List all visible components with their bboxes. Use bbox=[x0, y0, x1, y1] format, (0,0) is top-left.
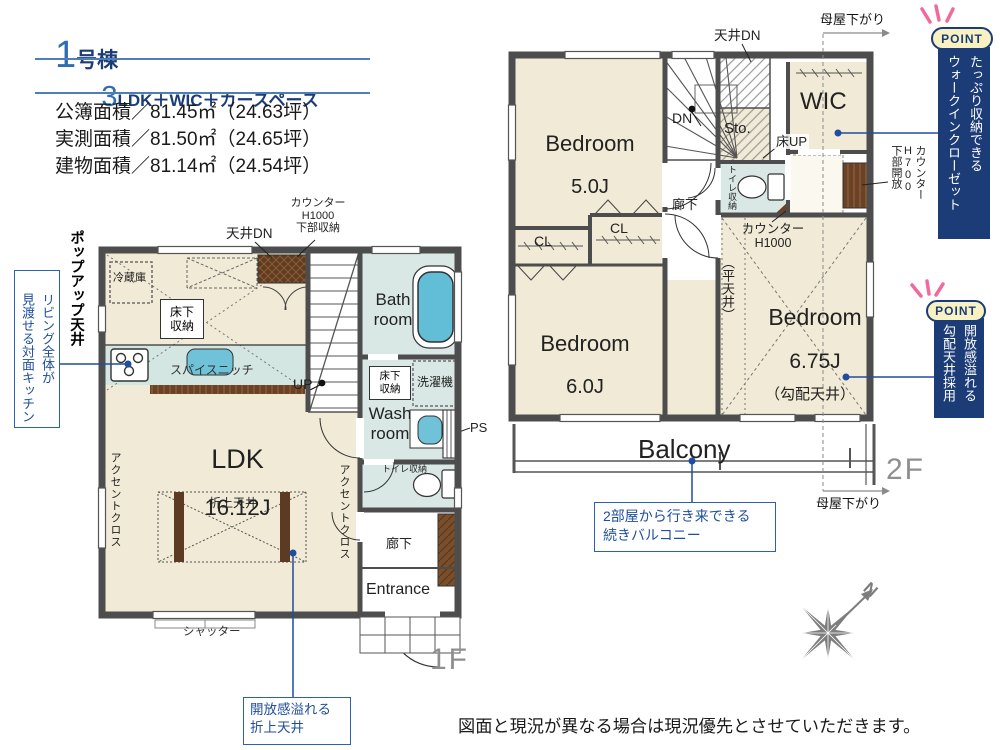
hallway-2f: 廊下 bbox=[672, 197, 698, 212]
balcony-callout: 2部屋から行き来できる 続きバルコニー bbox=[594, 502, 776, 552]
area-line-3: 建物面積／81.14㎡（24.54坪） bbox=[55, 156, 321, 178]
room-bedroom3: Bedroom 6.75J bbox=[755, 285, 875, 375]
unit-number: 1 bbox=[55, 34, 76, 76]
moya-bottom-label: 母屋下がり bbox=[816, 496, 881, 511]
ceiling-dn-2f: 天井DN bbox=[714, 28, 761, 44]
room-bedroom1: Bedroom 5.0J bbox=[530, 112, 650, 199]
accent-cloth-left: アクセントクロス bbox=[107, 452, 123, 567]
point-banner-wic: たっぷり収納できる ウォークインクローゼット bbox=[938, 47, 990, 239]
floor-up-label: 床UP bbox=[774, 134, 809, 149]
cl2-label: CL bbox=[610, 220, 628, 237]
toilet-storage-1f: トイレ収納 bbox=[382, 464, 427, 475]
room-storage: Sto. bbox=[724, 120, 751, 138]
shutter-label: シャッター bbox=[183, 626, 241, 640]
kitchen-callout: リビング全体が 見渡せる対面キッチン bbox=[14, 270, 60, 428]
floor2-label: 2F bbox=[886, 452, 925, 487]
moya-top-label: 母屋下がり bbox=[820, 12, 885, 27]
point-badge-1: POINT bbox=[931, 27, 993, 50]
accent-cloth-right: アクセントクロス bbox=[336, 464, 352, 579]
dn-label: DN bbox=[672, 110, 692, 127]
room-balcony: Balcony bbox=[638, 434, 731, 465]
underfloor-storage-kitchen: 床下 収納 bbox=[160, 299, 204, 339]
coffered-label: 折上天井 bbox=[209, 496, 257, 510]
ldk-label: LDK bbox=[211, 444, 264, 474]
room-entrance: Entrance bbox=[366, 581, 430, 600]
point1-text: たっぷり収納できる ウォークインクローゼット bbox=[942, 47, 986, 211]
underfloor-wash-label: 床下 収納 bbox=[380, 370, 401, 395]
bedroom2-label: Bedroom bbox=[540, 331, 629, 356]
cl1-label: CL bbox=[534, 233, 552, 250]
point2-text: 開放感溢れる 勾配天井採用 bbox=[938, 318, 980, 402]
underfloor-kitchen-label: 床下 収納 bbox=[170, 305, 194, 334]
counter-h1000-2f: カウンター H1000 bbox=[730, 222, 816, 251]
header-rule-top bbox=[35, 58, 370, 60]
point-badge-2: POINT bbox=[926, 300, 986, 322]
room-bedroom2: Bedroom 6.0J bbox=[525, 312, 645, 399]
washer-label: 洗濯機 bbox=[417, 375, 453, 389]
kitchen-callout-text: リビング全体が 見渡せる対面キッチン bbox=[17, 293, 57, 423]
ldk-callout: 開放感溢れる 折上天井 bbox=[243, 697, 351, 745]
toilet-storage-2f: トイレ収納 bbox=[726, 165, 739, 213]
ps-label: PS bbox=[470, 420, 487, 435]
room-bath: Bath room bbox=[364, 290, 422, 330]
counter-note-1f: カウンター H1000 下部収納 bbox=[283, 197, 353, 235]
counter-h700-label: カウンター H700 下部開放 bbox=[890, 145, 926, 211]
bedroom3-label: Bedroom bbox=[768, 304, 861, 330]
fridge-label: 冷蔵庫 bbox=[113, 272, 146, 285]
hallway-1f: 廊下 bbox=[386, 536, 412, 551]
header-rule-bottom bbox=[35, 92, 370, 94]
bedroom3-size: 6.75J bbox=[789, 350, 840, 373]
area-line-1: 公簿面積／81.45㎡（24.63坪） bbox=[55, 102, 321, 124]
floorplan-page: 1号棟 3LDK＋WIC＋カースペース 公簿面積／81.45㎡（24.63坪） … bbox=[0, 0, 1000, 750]
underfloor-storage-wash: 床下 収納 bbox=[369, 366, 411, 400]
bedroom1-label: Bedroom bbox=[545, 131, 634, 156]
spice-niche-label: スパイスニッチ bbox=[170, 363, 254, 377]
up-label: UP bbox=[293, 376, 312, 393]
sloped-ceiling-label: （勾配天井） bbox=[765, 386, 855, 404]
disclaimer-text: 図面と現況が異なる場合は現況優先とさせていただきます。 bbox=[458, 716, 920, 736]
area-line-2: 実測面積／81.50㎡（24.65坪） bbox=[55, 129, 321, 151]
bedroom2-size: 6.0J bbox=[566, 376, 604, 398]
ceiling-dn-1f: 天井DN bbox=[226, 226, 273, 242]
floor1-label: 1F bbox=[430, 642, 469, 677]
point-banner-sloped: 開放感溢れる 勾配天井採用 bbox=[934, 318, 984, 418]
bedroom1-size: 5.0J bbox=[571, 176, 609, 198]
flat-ceiling-label: （平天井） bbox=[718, 256, 737, 341]
room-wash: Wash room bbox=[360, 404, 420, 444]
popup-ceiling-label: ポップアップ天井 bbox=[66, 230, 87, 358]
compass-icon bbox=[801, 589, 873, 660]
room-wic: WIC bbox=[800, 88, 847, 116]
